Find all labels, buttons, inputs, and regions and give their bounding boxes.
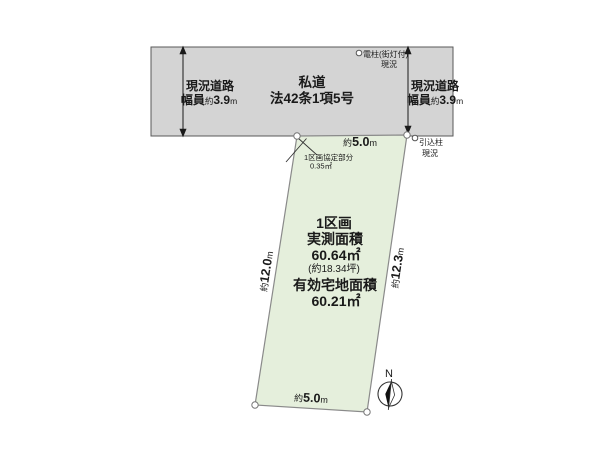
dimension-unit: m — [264, 251, 275, 260]
corner-marker-bottom-right — [364, 409, 370, 415]
measured-area-value: 60.64㎡ — [311, 247, 360, 263]
approx-word: 約 — [205, 96, 214, 106]
road-name: 私道 — [299, 74, 326, 90]
service-pole-marker — [412, 135, 418, 141]
dimension-value: 12.3 — [388, 254, 405, 280]
utility-pole-label: 電柱(街灯付) — [363, 49, 409, 59]
corner-marker-top-left — [294, 133, 300, 139]
corner-marker-bottom-left — [252, 402, 258, 408]
corner-marker-top-right — [404, 132, 410, 138]
utility-pole-status: 現況 — [381, 60, 397, 69]
width-value: 3.9 — [213, 93, 230, 107]
dimension-unit: m — [320, 395, 328, 405]
dimension-value: 5.0 — [352, 135, 369, 149]
width-value: 3.9 — [439, 93, 456, 107]
north-compass: N — [376, 368, 403, 411]
utility-pole-marker — [356, 50, 362, 56]
width-unit: m — [456, 96, 463, 106]
north-label: N — [385, 368, 393, 380]
compass-needle-group — [376, 378, 403, 411]
parcel-name: 1区画 — [316, 215, 352, 231]
service-pole-status: 現況 — [422, 149, 438, 158]
measured-area-label: 実測面積 — [307, 231, 364, 247]
plot-diagram-canvas: 私道 法42条1項5号 現況道路 幅員約3.9m 現況道路 幅員約3.9m 電柱… — [0, 0, 600, 450]
width-word: 幅員 — [181, 92, 205, 107]
dimension-unit: m — [395, 247, 406, 256]
approx-word: 約 — [431, 96, 440, 106]
tsubo-value: (約18.34坪) — [308, 262, 360, 275]
right-road-width-label: 現況道路 幅員約3.9m — [407, 78, 463, 107]
agreement-area-size: 0.35㎡ — [310, 162, 333, 171]
road-law-article: 法42条1項5号 — [270, 90, 354, 106]
dimension-top: 約5.0m — [343, 135, 377, 149]
left-road-width-label: 現況道路 幅員約3.9m — [181, 78, 237, 107]
effective-area-value: 60.21㎡ — [311, 293, 360, 309]
right-road-condition: 現況道路 — [411, 78, 460, 93]
agreement-area-name: 1区画協定部分 — [304, 152, 354, 162]
effective-area-label: 有効宅地面積 — [293, 277, 378, 293]
dimension-value: 12.0 — [257, 257, 275, 283]
approx-word: 約 — [343, 137, 352, 148]
service-pole-label: 引込柱 — [419, 137, 443, 147]
width-word: 幅員 — [407, 92, 431, 107]
dimension-unit: m — [369, 138, 377, 148]
width-unit: m — [230, 96, 237, 106]
service-pole-annotation: 引込柱 現況 — [412, 135, 443, 158]
land-plot-diagram: 私道 法42条1項5号 現況道路 幅員約3.9m 現況道路 幅員約3.9m 電柱… — [0, 0, 600, 450]
left-road-condition: 現況道路 — [186, 78, 235, 93]
dimension-value: 5.0 — [303, 391, 321, 406]
